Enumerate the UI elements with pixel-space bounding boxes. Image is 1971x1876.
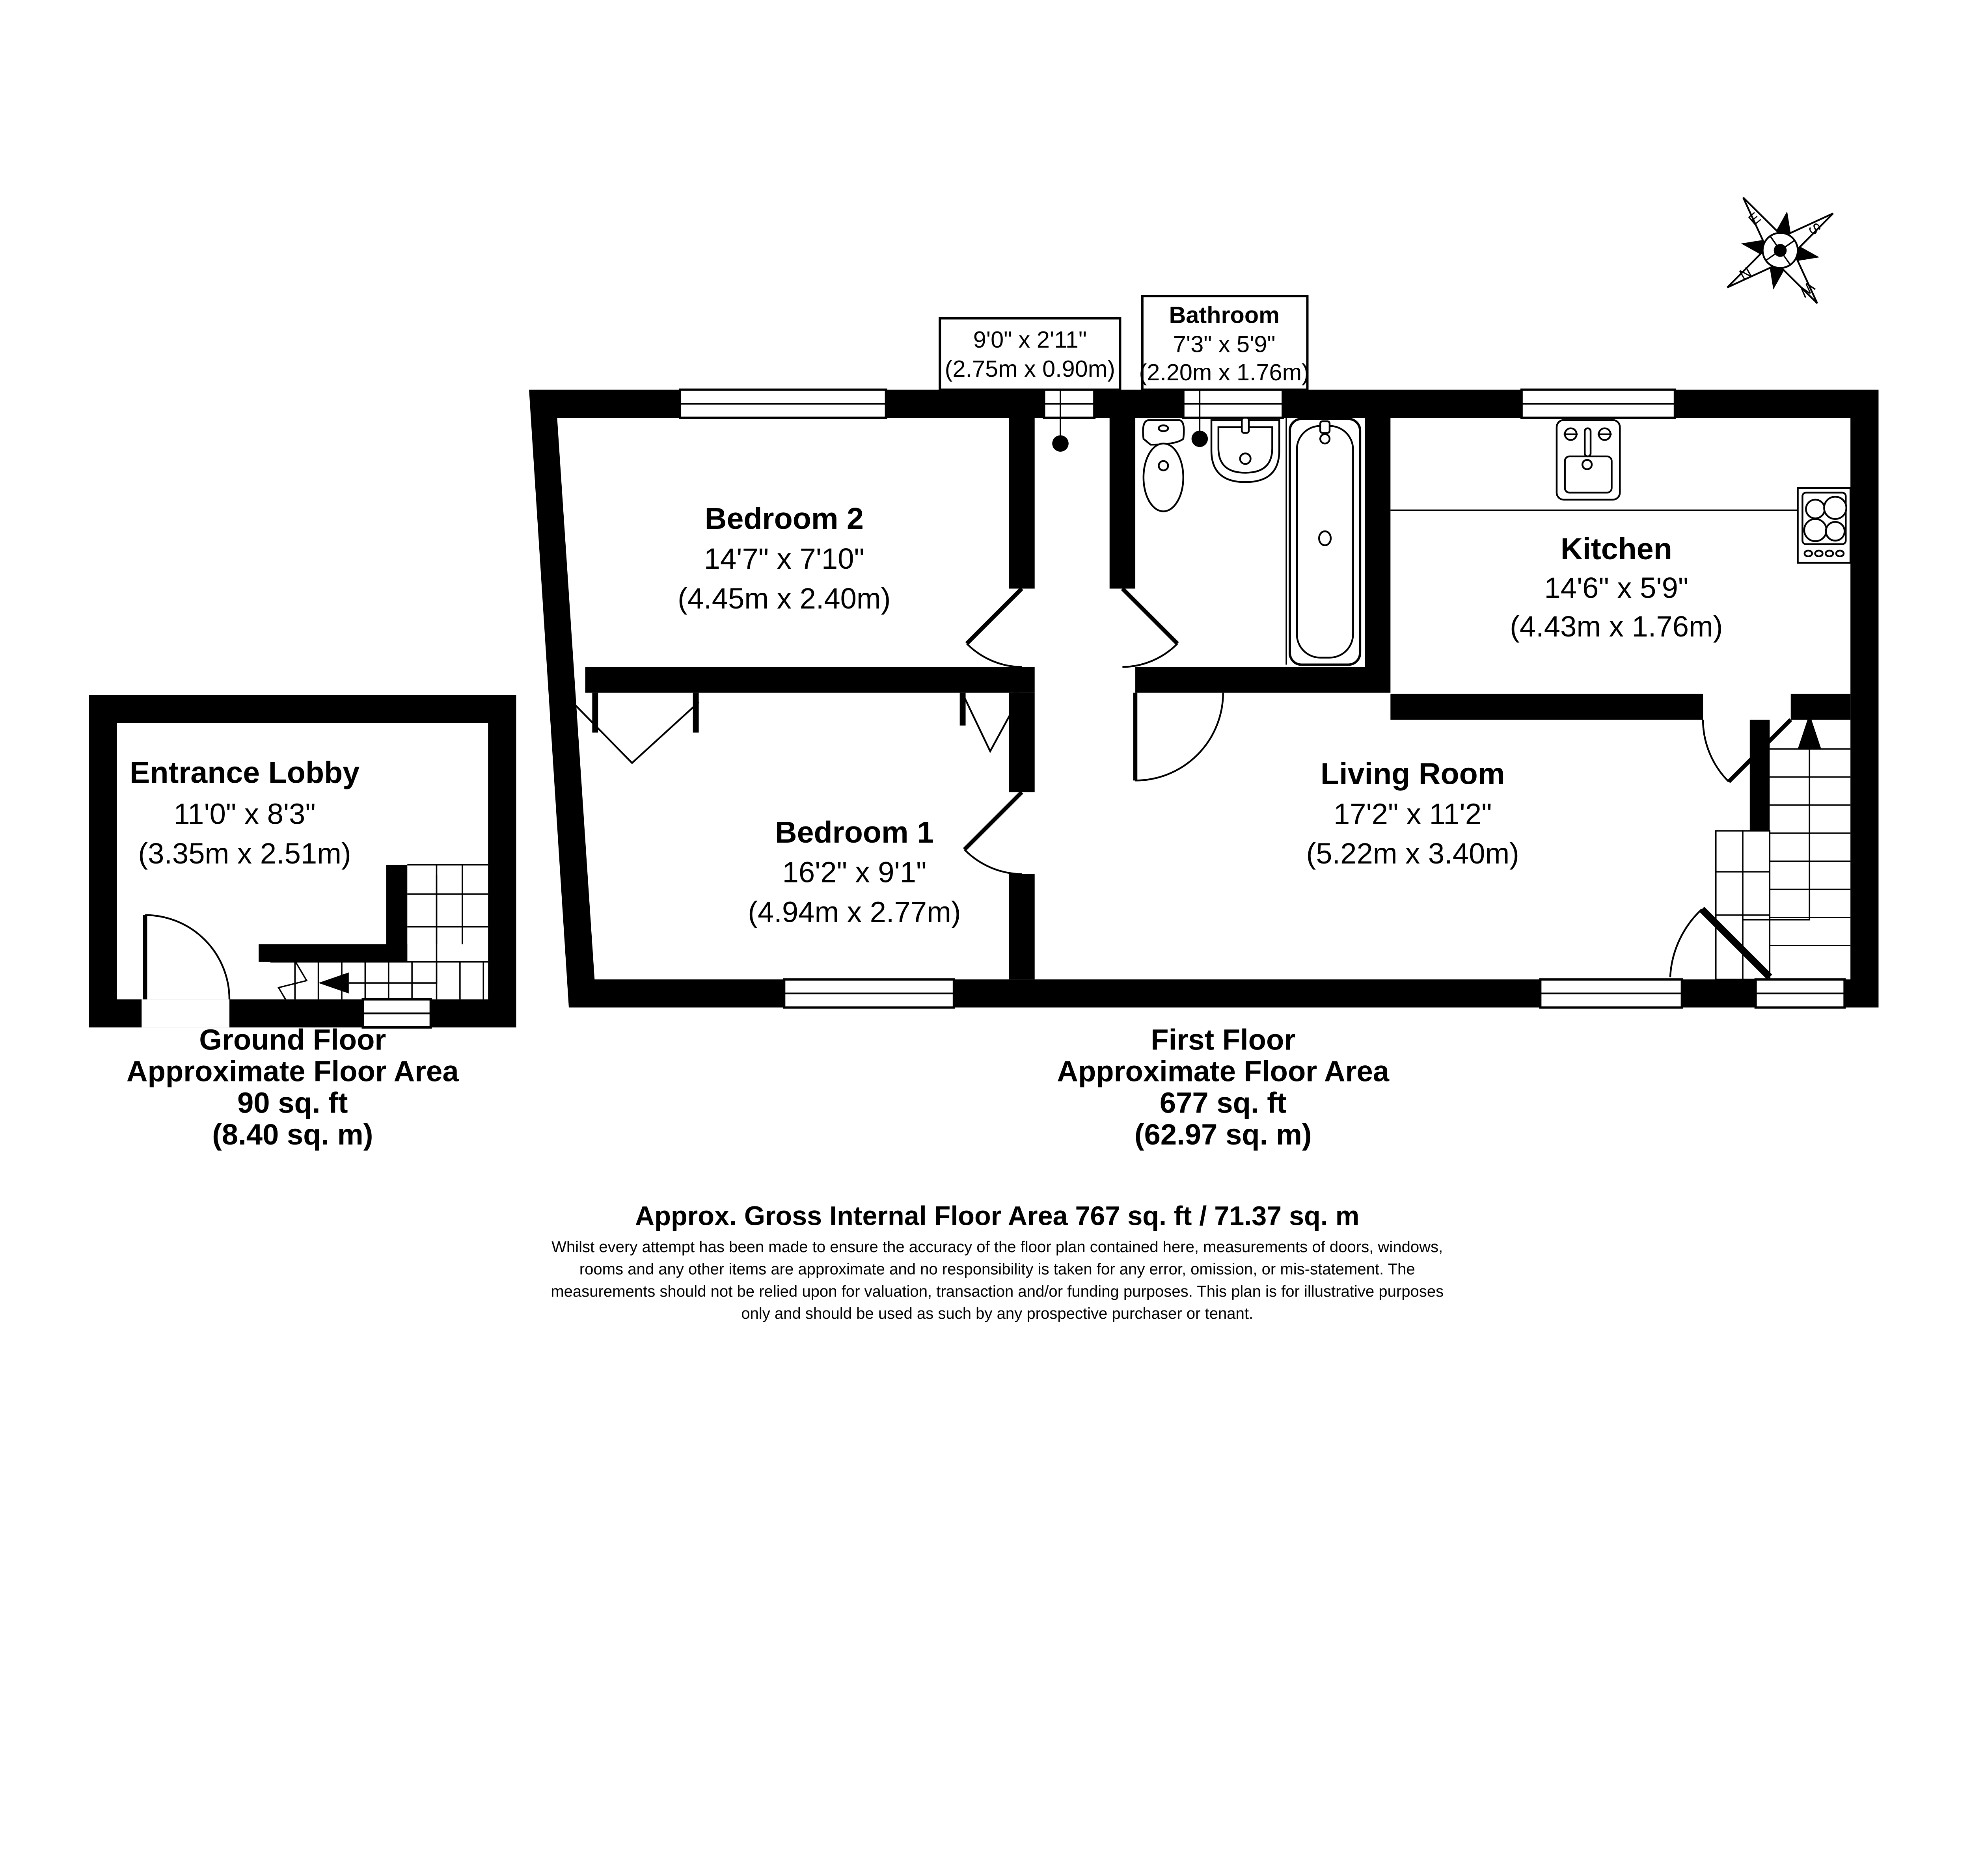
bedroom1-right-wall-lower — [1009, 874, 1034, 979]
first-floor-title: First Floor — [1151, 1023, 1295, 1056]
kitchen-label: Kitchen 14'6" x 5'9" (4.43m x 1.76m) — [1510, 532, 1723, 643]
kitchen-dim-metric: (4.43m x 1.76m) — [1510, 610, 1723, 643]
hob-icon — [1798, 488, 1851, 563]
ground-floor-subtitle: Approximate Floor Area — [127, 1055, 459, 1087]
ground-floor-plan: Entrance Lobby 11'0" x 8'3" (3.35m x 2.5… — [89, 695, 516, 1027]
toilet-icon — [1143, 420, 1184, 512]
kitchen-bottom-wall-left — [1390, 694, 1703, 720]
bedroom-divider-wall — [585, 667, 1035, 692]
disclaimer-line-1: Whilst every attempt has been made to en… — [551, 1238, 1443, 1256]
bedroom2-door — [967, 588, 1022, 644]
kitchen-dim-imperial: 14'6" x 5'9" — [1544, 571, 1688, 604]
kitchen-name: Kitchen — [1561, 532, 1672, 566]
bathroom-left-wall — [1110, 418, 1135, 588]
ground-floor-title: Ground Floor — [199, 1023, 386, 1056]
entrance-door — [142, 915, 229, 1027]
first-floor-subtitle: Approximate Floor Area — [1057, 1055, 1389, 1087]
lobby-dim-imperial: 11'0" x 8'3" — [173, 797, 315, 830]
bedroom2-dim-metric: (4.45m x 2.40m) — [678, 582, 890, 615]
hall-left-wall — [1009, 418, 1034, 588]
first-floor-area-ft: 677 sq. ft — [1160, 1087, 1287, 1119]
bathroom-name: Bathroom — [1169, 301, 1280, 328]
first-floor-plan: 9'0" x 2'11" (2.75m x 0.90m) Bathroom 7'… — [529, 296, 1878, 1007]
bedroom2-label: Bedroom 2 14'7" x 7'10" (4.45m x 2.40m) — [678, 502, 890, 615]
bedroom1-cupboards — [572, 693, 1019, 763]
hall-dim-metric: (2.75m x 0.90m) — [945, 355, 1115, 382]
gross-area-title: Approx. Gross Internal Floor Area 767 sq… — [635, 1201, 1359, 1231]
bedroom1-dim-imperial: 16'2" x 9'1" — [782, 856, 927, 889]
lobby-label: Entrance Lobby 11'0" x 8'3" (3.35m x 2.5… — [130, 756, 360, 870]
first-floor-area-m: (62.97 sq. m) — [1135, 1118, 1312, 1151]
bathroom-bottom-wall — [1135, 667, 1390, 692]
kitchen-sink-icon — [1557, 420, 1620, 500]
bathtub-icon — [1290, 419, 1360, 665]
first-floor-area-block: First Floor Approximate Floor Area 677 s… — [1057, 1023, 1389, 1150]
bathroom-fixtures — [1143, 418, 1360, 664]
bedroom1-name: Bedroom 1 — [775, 815, 934, 849]
ground-floor-area-block: Ground Floor Approximate Floor Area 90 s… — [127, 1023, 459, 1150]
bathroom-dim-metric: (2.20m x 1.76m) — [1139, 359, 1310, 385]
living-dim-metric: (5.22m x 3.40m) — [1306, 837, 1519, 870]
bedroom1-right-wall-upper — [1009, 693, 1034, 792]
bathroom-sink-icon — [1211, 418, 1279, 482]
living-dim-imperial: 17'2" x 11'2" — [1334, 797, 1492, 830]
footer-block: Approx. Gross Internal Floor Area 767 sq… — [551, 1201, 1444, 1323]
disclaimer-line-4: only and should be used as such by any p… — [741, 1305, 1253, 1322]
bedroom1-dim-metric: (4.94m x 2.77m) — [748, 896, 961, 929]
floorplan-canvas: 9'0" x 2'11" (2.75m x 0.90m) Bathroom 7'… — [0, 0, 1971, 1392]
lobby-name: Entrance Lobby — [130, 756, 360, 789]
ground-stair-wall-horizontal — [259, 944, 407, 962]
bedroom2-dim-imperial: 14'7" x 7'10" — [704, 542, 864, 575]
living-name: Living Room — [1321, 757, 1505, 791]
bedroom1-door — [965, 792, 1022, 849]
bathroom-leader-dot — [1192, 431, 1208, 447]
ground-floor-area-ft: 90 sq. ft — [237, 1087, 348, 1119]
bedroom1-label: Bedroom 1 16'2" x 9'1" (4.94m x 2.77m) — [748, 815, 961, 929]
living-room-label: Living Room 17'2" x 11'2" (5.22m x 3.40m… — [1306, 757, 1519, 870]
stairwell-wall — [1750, 720, 1770, 831]
bathroom-right-wall — [1365, 418, 1390, 667]
kitchen-bottom-wall-right — [1791, 694, 1850, 720]
ground-floor-stairs — [270, 865, 488, 1013]
ground-stair-down-arrow-icon — [319, 972, 349, 993]
compass-rose-icon: E S W N — [1727, 197, 1833, 303]
lobby-dim-metric: (3.35m x 2.51m) — [138, 837, 351, 870]
cupboard1-doors-icon — [572, 702, 699, 763]
disclaimer-line-2: rooms and any other items are approximat… — [579, 1260, 1415, 1278]
bathroom-dim-imperial: 7'3" x 5'9" — [1173, 331, 1276, 357]
hall-leader-dot — [1052, 435, 1069, 452]
ground-floor-area-m: (8.40 sq. m) — [212, 1118, 373, 1151]
bathroom-door — [1122, 588, 1177, 644]
bedroom2-name: Bedroom 2 — [705, 502, 864, 536]
disclaimer-line-3: measurements should not be relied upon f… — [551, 1283, 1444, 1300]
hall-dim-imperial: 9'0" x 2'11" — [973, 326, 1087, 353]
